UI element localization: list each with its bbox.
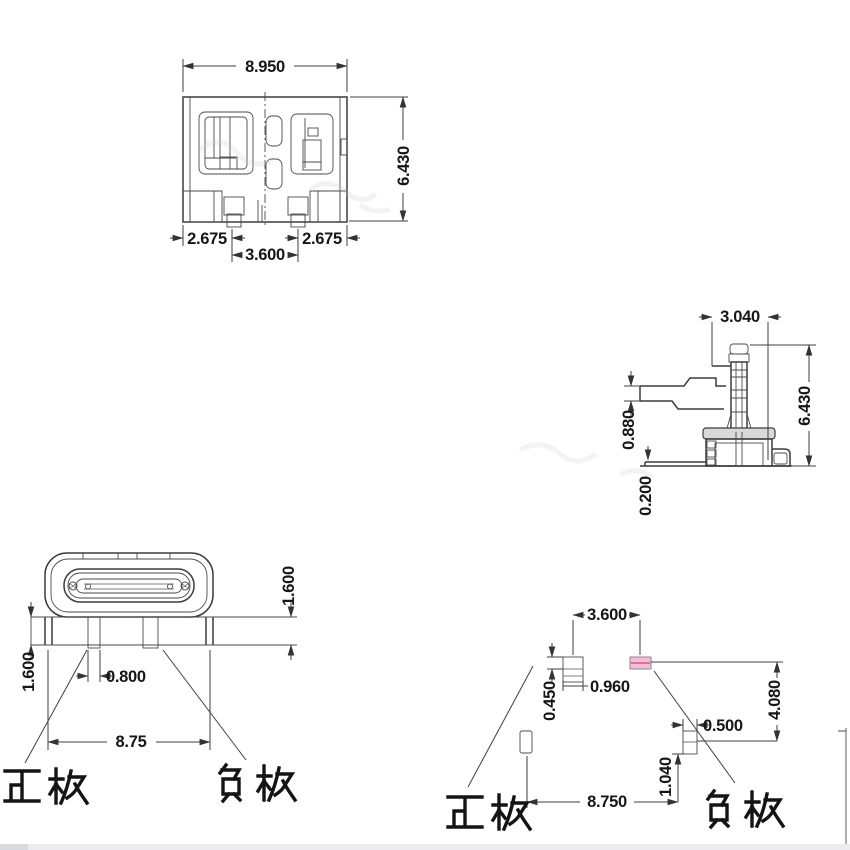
dim-front-span: 8.75 (116, 733, 147, 751)
dim-top-left-pin: 2.675 (187, 230, 227, 248)
label-positive-footprint (448, 795, 530, 829)
front-view-slot (64, 569, 194, 602)
dim-top-right-pin: 2.675 (302, 230, 342, 248)
front-view-body (31, 553, 297, 648)
top-view-pin-right (288, 197, 308, 215)
top-view-dimensions: 8.950 6.430 2.675 2.675 3.600 (170, 58, 413, 264)
side-view-dimensions: 3.040 0.880 0.200 6.430 (620, 308, 816, 516)
dim-footprint-span: 8.750 (587, 793, 627, 811)
label-negative-footprint (708, 791, 783, 827)
dim-footprint-pad2-width: 0.500 (703, 717, 743, 735)
dim-front-left-height: 1.600 (20, 652, 38, 692)
side-view: 3.040 0.880 0.200 6.430 (620, 308, 816, 516)
dim-side-lead: 0.880 (620, 410, 638, 450)
footprint-dimensions: 3.600 0.450 0.960 4.080 0.500 1.040 8.7 (468, 606, 784, 811)
front-view-dimensions: 1.600 1.600 0.800 8.75 (20, 566, 298, 763)
dim-front-right-height: 1.600 (280, 566, 298, 606)
leader-front-negative (163, 650, 246, 760)
dim-top-pin-span: 3.600 (245, 246, 285, 264)
connector-drawing: 8.950 6.430 2.675 2.675 3.600 (0, 0, 850, 850)
front-view: 1.600 1.600 0.800 8.75 (5, 553, 298, 803)
dim-footprint-col-span: 4.080 (766, 680, 784, 720)
top-view-pin-left (224, 197, 244, 215)
adjacent-view-edge (838, 728, 846, 845)
top-view-body (183, 92, 347, 227)
footprint-pad-top-left (563, 657, 583, 682)
dim-footprint-pad-width: 0.960 (590, 678, 630, 696)
dim-front-pin-width: 0.800 (106, 668, 146, 686)
label-negative-front (220, 765, 295, 801)
dim-side-height: 6.430 (796, 386, 814, 426)
engineering-drawing-canvas: 8.950 6.430 2.675 2.675 3.600 (0, 0, 850, 850)
footprint-pad-bottom-left (520, 731, 532, 753)
side-view-body (640, 344, 792, 466)
footprint-pad-bottom-right (683, 731, 697, 754)
label-positive-front (5, 769, 87, 803)
dim-side-standoff: 0.200 (637, 476, 655, 516)
dim-footprint-pad-height: 0.450 (541, 681, 559, 721)
front-view-pin-left (88, 617, 100, 648)
footprint-view: 3.600 0.450 0.960 4.080 0.500 1.040 8.7 (448, 606, 846, 845)
leader-footprint-positive (468, 666, 533, 787)
dim-top-height: 6.430 (395, 146, 413, 186)
top-view: 8.950 6.430 2.675 2.675 3.600 (170, 58, 413, 264)
dim-top-width: 8.950 (245, 58, 285, 76)
front-view-pin-right (143, 617, 158, 648)
front-view-tongue (76, 579, 182, 593)
bottom-strip (0, 844, 850, 850)
dim-side-width: 3.040 (720, 308, 760, 326)
watermark-traces (200, 142, 652, 477)
bottom-strip-corner (0, 844, 28, 850)
side-view-lead-arm (640, 378, 726, 409)
dim-footprint-pitch: 3.600 (587, 606, 627, 624)
dim-footprint-pad2-height: 1.040 (657, 757, 675, 797)
